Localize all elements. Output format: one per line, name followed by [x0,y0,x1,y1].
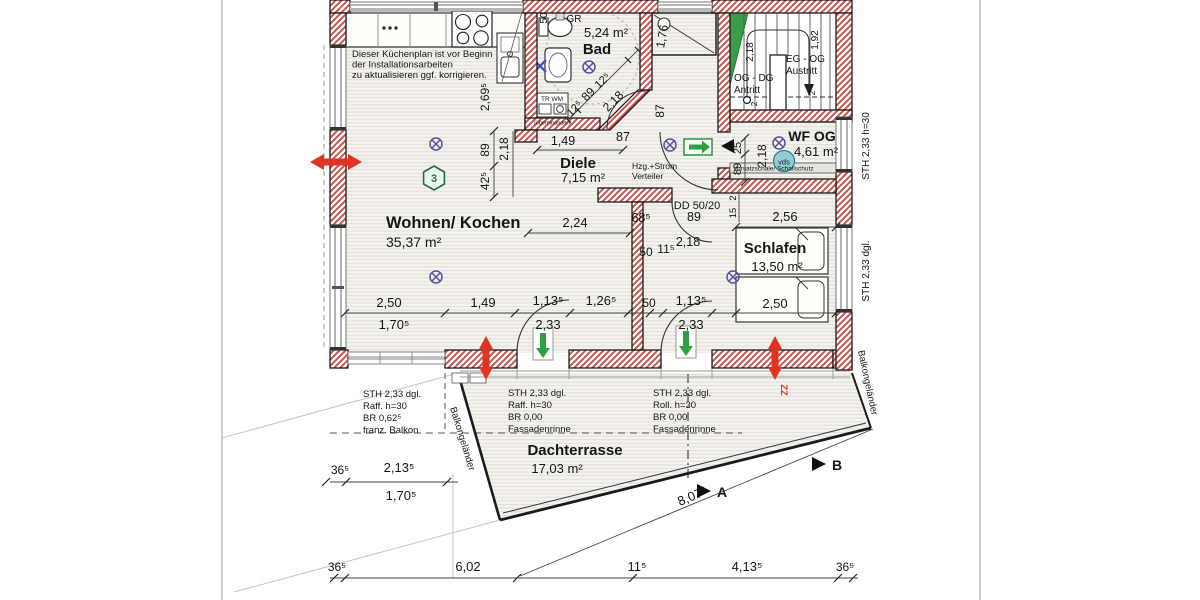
dim-b365b: 36⁵ [836,560,854,574]
dim-s89: 89 [687,210,701,224]
terrace-note-left-4: Fassadenrinne [508,424,571,435]
dim-row250a: 2,50 [376,295,401,310]
stairs-eg-og: EG - OG [786,54,825,65]
hzg-strom-label: Hzg.+Strom [632,161,677,171]
dim-row126: 1,26⁵ [586,293,617,308]
gr-label: GR [567,14,582,25]
terrace-note-left-3: BR 0,00 [508,412,542,423]
dim-k218: 2,18 [497,137,511,161]
washbasin-icon [545,48,571,82]
dim-row113a: 1,13⁵ [533,293,564,308]
room-bad-area: 5,24 m² [584,25,629,40]
terrace-note-left-1: STH 2,33 dgl. [508,388,566,399]
dim-b4135: 4,13⁵ [732,559,763,574]
room-wf-name: WF OG [788,128,836,144]
dim-s50: 50 [639,245,653,259]
dim-row233b: 2,33 [678,317,703,332]
stairs-dim-218: 2,18 [745,42,756,62]
dim-k269: 2,69⁵ [478,83,492,111]
dim-k425: 42⁵ [478,172,492,190]
dim-s218: 2,18 [676,235,700,249]
section-marker-b: B [812,457,842,473]
balcony-note-4: franz. Balkon [363,425,418,436]
hexagon-number: 3 [431,173,437,185]
dim-diele87: 87 [616,130,630,144]
dim-s685: 68⁵ [631,211,650,225]
kitchen-note-line3: zu aktualisieren ggf. korrigieren. [352,70,487,81]
dim-b807: 8,07⁵ [675,483,709,509]
terrace-note-right-1: STH 2,33 dgl. [653,388,711,399]
dim-bad87: 87 [653,104,667,118]
room-diele-area: 7,15 m² [561,170,606,185]
cabinet-handle-dots [382,26,385,29]
window-right-lower [836,225,852,312]
dim-row149: 1,49 [470,295,495,310]
room-terrasse-area: 17,03 m² [531,461,583,476]
stairs-antritt: Antritt [734,85,760,96]
dim-w224: 2,24 [562,215,587,230]
stairs-og-dg: OG - DG [734,73,774,84]
sink-icon [497,33,523,83]
room-wohnen-name: Wohnen/ Kochen [386,214,520,232]
dim-diele149: 1,49 [551,134,575,148]
window-top-kitchen [350,2,523,11]
terrace-door-arrow-1 [533,328,553,360]
hexagon-badge: 3 [424,166,445,190]
stairs-dim-2b: 2 [807,90,817,95]
window-left-lower [330,225,346,350]
window-right-upper [836,117,852,172]
trwm-label: TR WM [541,96,563,103]
room-schlafen-area: 13,50 m² [751,259,803,274]
window-sill-french-balcony [348,352,445,364]
dim-b365a: 36⁵ [328,560,346,574]
room-wohnen-area: 35,37 m² [386,234,442,250]
terrace-note-right-2: Roll. h=30 [653,400,696,411]
balcony-note-2: Raff. h=30 [363,401,407,412]
window-left-upper [330,45,346,130]
exit-arrow-icon [684,139,712,155]
dim-row233a: 2,33 [535,317,560,332]
stairs-dim-2a: 2 [749,101,759,106]
verteiler-label: Verteiler [632,171,663,181]
sth-right-lower: STH 2,33 dgl. [861,240,872,301]
dim-row50: 50 [642,296,656,310]
window-top-shower [658,2,712,11]
room-bad-name: Bad [583,41,611,58]
stove-icon [452,11,492,47]
dim-s2: 2 [728,195,739,200]
dim-b602: 6,02 [455,559,480,574]
vorsatzschale-label: Vorsatzschale/ Schallschutz [733,166,814,173]
dim-row250b: 2,50 [762,296,787,311]
dim-bad50: 50 [539,12,550,24]
dim-wf89: 89 [732,163,744,175]
dim-wf25: 25 [732,142,744,154]
dim-b115: 11⁵ [628,559,647,574]
dim-bl2135: 2,13⁵ [384,460,415,475]
sth-right-upper: STH 2,33 h=30 [861,112,872,180]
room-wf-area: 4,61 m² [794,144,839,159]
dim-row113b: 1,13⁵ [676,293,707,308]
balcony-note-1: STH 2,33 dgl. [363,389,421,400]
room-schlafen-name: Schlafen [744,240,807,257]
terrace-note-right-3: BR 0,00 [653,412,687,423]
floor-plan: B BIRICH IMMOBILIEN [0,0,1200,600]
kitchen-note-line2: der Installationsarbeiten [352,60,453,71]
section-b-label: B [832,457,842,473]
kitchen-note-line1: Dieser Küchenplan ist vor Beginn [352,49,492,60]
dim-s256: 2,56 [772,209,797,224]
terrace-note-right-4: Fassadenrinne [653,424,716,435]
dim-k89: 89 [478,143,492,157]
dim-bl1705: 1,70⁵ [386,488,417,503]
dim-bl365: 36⁵ [331,463,349,477]
terrace-note-left-2: Raff. h=30 [508,400,552,411]
zz-label: ZZ [778,384,789,396]
balcony-note-3: BR 0,62⁵ [363,413,401,424]
dim-wf218: 2,18 [755,144,769,168]
stairs-dim-192: 1,92 [810,30,821,50]
dim-s115: 11⁵ [657,242,674,256]
dim-s15: 15 [728,208,739,219]
dim-row170: 1,70⁵ [379,317,410,332]
stairs-austritt: Austritt [786,66,817,77]
room-terrasse-name: Dachterrasse [527,442,622,459]
floor-plan-page: B BIRICH IMMOBILIEN [0,0,1200,600]
uebereinander-label: (übereinander) [534,121,570,127]
